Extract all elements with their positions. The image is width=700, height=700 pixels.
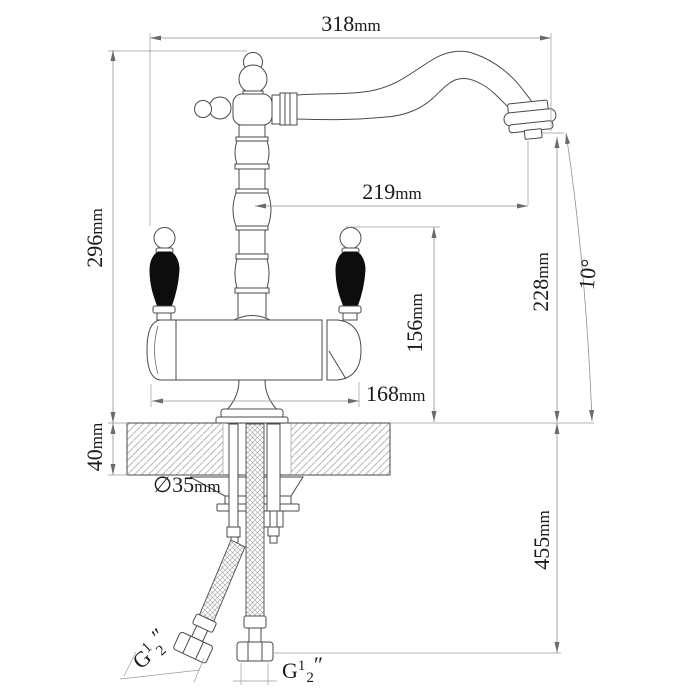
supply-hose-angled — [173, 540, 245, 664]
dimension-10deg-angle: 10° — [566, 133, 601, 421]
hose-nut-bottom — [237, 642, 273, 661]
right-handle-ball — [340, 228, 361, 249]
left-handle-grip — [150, 252, 179, 307]
right-handle-grip — [336, 252, 365, 307]
dim-35-label: ∅35mm — [153, 472, 221, 497]
left-knob — [209, 97, 231, 119]
dimension-168-body-width: 168mm — [151, 381, 425, 407]
faucet-technical-drawing: 318mm 296mm 219mm 228mm 10° 156mm 168mm — [0, 0, 700, 700]
technical-drawing-page: 318mm 296mm 219mm 228mm 10° 156mm 168mm — [0, 0, 700, 700]
body — [147, 313, 361, 380]
left-handle — [150, 228, 179, 314]
base-flange — [216, 380, 288, 424]
dim-455-label: 455mm — [529, 510, 554, 569]
column — [233, 125, 271, 320]
right-handle — [336, 228, 365, 314]
body-left-cap — [147, 320, 176, 380]
dimension-219-projection: 219mm — [255, 141, 528, 206]
faucet-outline — [127, 51, 558, 664]
dim-168-label: 168mm — [366, 381, 425, 406]
cross-fitting — [195, 93, 298, 125]
finial — [239, 53, 267, 96]
dim-228-label: 228mm — [528, 252, 553, 311]
dimension-35-hole-diameter: ∅35mm — [153, 472, 221, 497]
dim-10deg-label: 10° — [574, 258, 602, 291]
left-handle-ball — [154, 228, 175, 249]
dim-318-label: 318mm — [321, 11, 380, 36]
thread-bottom-label: G12″ — [282, 652, 323, 686]
dim-296-label: 296mm — [82, 208, 107, 267]
spout — [297, 51, 534, 119]
dim-219-label: 219mm — [362, 179, 421, 204]
dimension-228-outlet-height: 228mm — [528, 133, 564, 422]
aerator — [502, 99, 558, 141]
dimension-40-deck-thickness: 40mm — [82, 423, 128, 475]
dim-156-label: 156mm — [402, 293, 427, 352]
dim-40-label: 40mm — [82, 423, 107, 471]
thread-left-label: G12″ — [123, 623, 176, 676]
body-right-cap — [327, 320, 361, 380]
